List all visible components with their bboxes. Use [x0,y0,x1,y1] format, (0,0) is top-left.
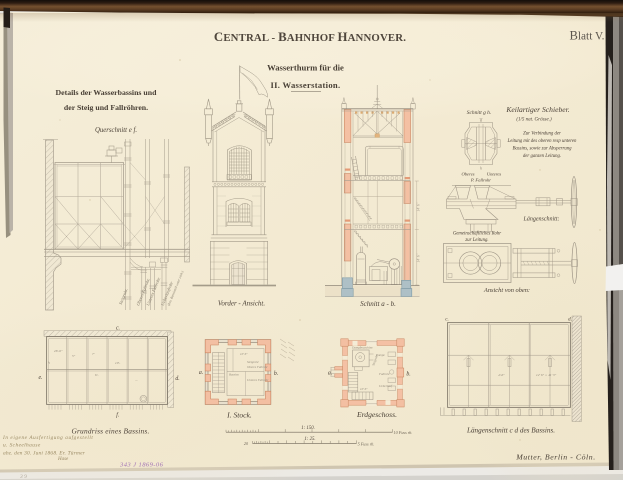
svg-text:Querschnitt e f.: Querschnitt e f. [95,127,137,134]
svg-text:u. Scheelhause: u. Scheelhause [3,443,41,449]
svg-text:10'-: 10'- [115,361,120,365]
svg-text:Keilartiger Schieber.: Keilartiger Schieber. [505,105,569,114]
svg-text:Ansicht von oben:: Ansicht von oben: [483,287,530,294]
svg-text:Schnitt g h.: Schnitt g h. [467,110,491,116]
svg-text:Leitung mit des oberen resp un: Leitung mit des oberen resp unteren [507,139,577,144]
svg-text:Längenschnitt c d des Bassins.: Längenschnitt c d des Bassins. [466,427,555,435]
svg-text:Erdgeschoss.: Erdgeschoss. [356,410,397,419]
svg-text:10' 6": 10' 6" [240,352,248,356]
svg-text:Oberes: Oberes [461,172,474,177]
svg-text:Hase: Hase [57,457,69,462]
svg-text:abz. den 30. Juni 1868. Er. Tü: abz. den 30. Juni 1868. Er. Türmer [3,451,86,457]
svg-text:10 Fuss rh.: 10 Fuss rh. [394,430,413,435]
svg-text:Längenschnitt:: Längenschnitt: [523,217,560,223]
svg-text:d.: d. [175,376,179,382]
svg-text:12' 6" = 41' 3": 12' 6" = 41' 3" [536,373,557,377]
svg-text:f.: f. [116,412,119,419]
svg-text:Schnitt a - b.: Schnitt a - b. [360,300,396,308]
svg-text:P. Fallrohr: P. Fallrohr [470,178,491,183]
svg-text:1: 25.: 1: 25. [304,437,315,442]
svg-text:26'-6": 26'-6" [54,349,63,353]
svg-text:(1/5 nat. Grösse.): (1/5 nat. Grösse.) [516,118,552,123]
svg-text:4'-6": 4'-6" [498,373,505,377]
svg-text:10' 6": 10' 6" [360,387,368,391]
svg-text:6'-: 6'- [95,373,99,377]
svg-text:der ganzen Leitung.: der ganzen Leitung. [523,154,561,159]
svg-text:Ueberlauf: Ueberlauf [379,384,393,388]
svg-text:...: ... [135,378,138,382]
svg-text:c.: c. [116,326,120,332]
svg-text:b.: b. [406,372,410,378]
svg-text:zur Leitung.: zur Leitung. [464,238,488,243]
svg-text:Fallrohr: Fallrohr [378,372,391,376]
svg-text:Gemeinschaftliches Rohr: Gemeinschaftliches Rohr [453,232,501,237]
svg-text:g: g [480,118,482,122]
svg-text:Dampfmaschine: Dampfmaschine [351,346,373,350]
svg-text:CENTRAL - BAHNHOF HANNOVER.: CENTRAL - BAHNHOF HANNOVER. [214,30,406,44]
svg-text:5 Fuss rh.: 5 Fuss rh. [358,442,375,447]
svg-text:h: h [480,167,482,171]
svg-text:Bassins: Bassins [229,373,240,377]
svg-text:b.: b. [274,371,278,377]
svg-text:Oberes Fallrohr: Oberes Fallrohr [247,365,269,369]
svg-text:II. Wasserstation.: II. Wasserstation. [271,80,341,90]
svg-text:d.: d. [568,318,572,323]
svg-text:c.: c. [445,318,448,323]
svg-text:3 9: 3 9 [19,474,27,480]
svg-text:In eigene Ausfertigung aufgest: In eigene Ausfertigung aufgestellt [2,434,93,441]
svg-text:Steigrohr: Steigrohr [247,360,260,364]
svg-text:Vorder - Ansicht.: Vorder - Ansicht. [218,300,265,308]
svg-text:a.: a. [199,370,203,376]
svg-text:4': 4' [47,361,51,364]
svg-text:a.: a. [328,371,332,377]
svg-text:Zur Verbindung der: Zur Verbindung der [523,132,561,137]
svg-text:14' 6": 14' 6" [417,202,421,211]
svg-text:Bassins, sowie zur Absperrung: Bassins, sowie zur Absperrung [512,147,572,152]
svg-text:Blatt V.: Blatt V. [570,29,605,43]
svg-text:7': 7' [92,352,95,356]
svg-text:343 J 1869-06: 343 J 1869-06 [119,462,164,469]
svg-text:14' 6": 14' 6" [417,253,421,262]
svg-text:Wasserthurm für die: Wasserthurm für die [267,63,344,73]
svg-text:Unteres: Unteres [487,172,502,177]
svg-text:I. Stock.: I. Stock. [226,411,252,420]
svg-text:der Steig und Fallröhren.: der Steig und Fallröhren. [64,103,148,112]
svg-text:Details der Wasserbassins und: Details der Wasserbassins und [56,88,158,97]
svg-text:e.: e. [38,375,42,381]
svg-text:Mutter, Berlin - Cöln.: Mutter, Berlin - Cöln. [515,453,595,462]
svg-text:1: 150.: 1: 150. [301,426,315,431]
svg-text:Unteres Fallrohr: Unteres Fallrohr [247,378,269,382]
